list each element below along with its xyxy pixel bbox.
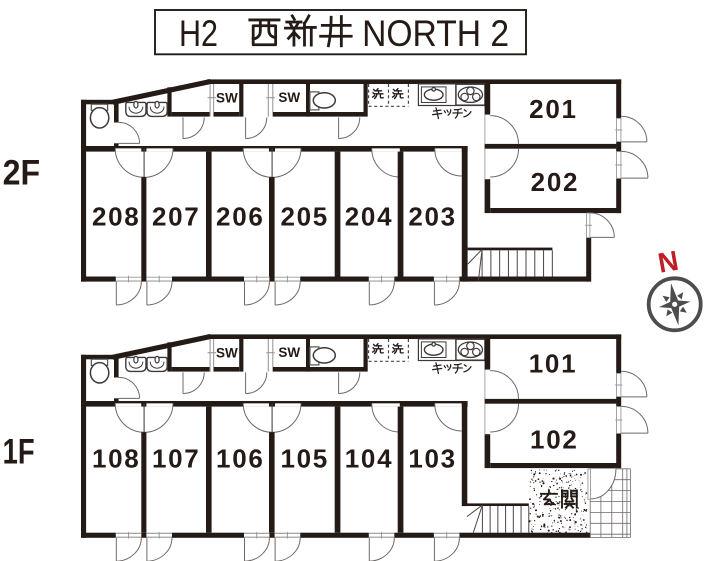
svg-text:204: 204 <box>345 201 393 231</box>
svg-text:108: 108 <box>92 443 140 473</box>
svg-text:104: 104 <box>345 443 393 473</box>
svg-text:107: 107 <box>152 443 200 473</box>
svg-text:2F: 2F <box>3 153 41 192</box>
svg-text:SW: SW <box>278 90 300 105</box>
svg-text:203: 203 <box>408 201 456 231</box>
svg-text:208: 208 <box>92 201 140 231</box>
svg-text:SW: SW <box>216 345 238 360</box>
svg-text:106: 106 <box>216 443 264 473</box>
svg-text:1F: 1F <box>3 432 35 471</box>
svg-text:101: 101 <box>529 349 577 379</box>
svg-text:201: 201 <box>529 94 577 124</box>
svg-text:H2: H2 <box>179 12 218 54</box>
svg-text:102: 102 <box>530 425 578 455</box>
svg-text:103: 103 <box>408 443 456 473</box>
svg-text:NORTH 2: NORTH 2 <box>362 12 509 54</box>
svg-text:202: 202 <box>531 167 579 197</box>
svg-text:SW: SW <box>216 90 238 105</box>
svg-text:205: 205 <box>280 201 328 231</box>
svg-text:105: 105 <box>280 443 328 473</box>
svg-text:207: 207 <box>152 201 200 231</box>
svg-text:SW: SW <box>278 345 300 360</box>
svg-text:206: 206 <box>216 201 264 231</box>
